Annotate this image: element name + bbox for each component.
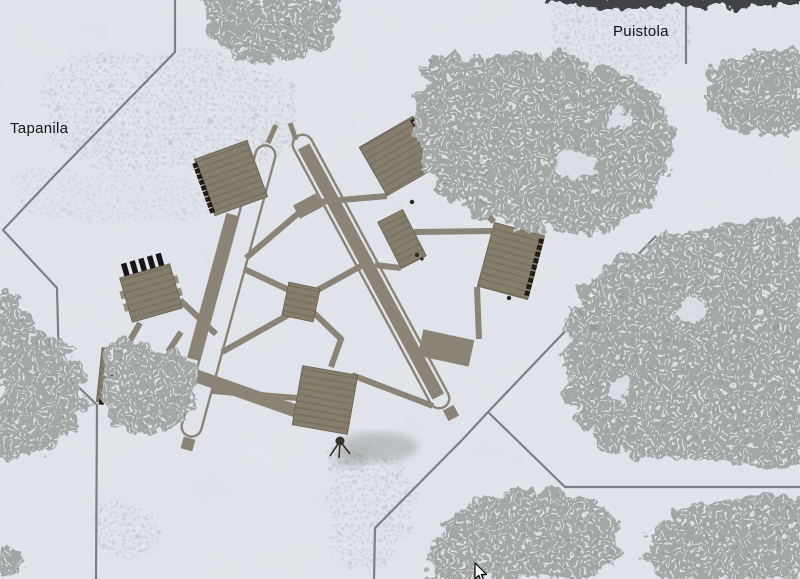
taxiway-connector <box>477 287 479 339</box>
mouse-cursor-icon <box>474 562 490 579</box>
taxiway-connector <box>414 231 492 232</box>
poi-dot[interactable] <box>507 296 511 300</box>
poi-dot[interactable] <box>420 257 423 260</box>
forest-clearing <box>606 380 634 400</box>
forest-clearing <box>674 299 706 321</box>
forest-clearing <box>553 151 597 179</box>
poi-dot[interactable] <box>410 200 414 204</box>
poi-dot[interactable] <box>415 253 419 257</box>
taxiway-connector <box>375 265 401 268</box>
game-map-view[interactable]: Puistola Tapanila <box>0 0 800 579</box>
hangar-south[interactable] <box>292 366 358 435</box>
place-label-tapanila: Tapanila <box>10 120 68 137</box>
map-canvas[interactable] <box>0 0 800 579</box>
forest-clearing <box>608 111 632 129</box>
place-label-puistola: Puistola <box>613 23 669 40</box>
building-center-pad[interactable] <box>282 282 320 322</box>
